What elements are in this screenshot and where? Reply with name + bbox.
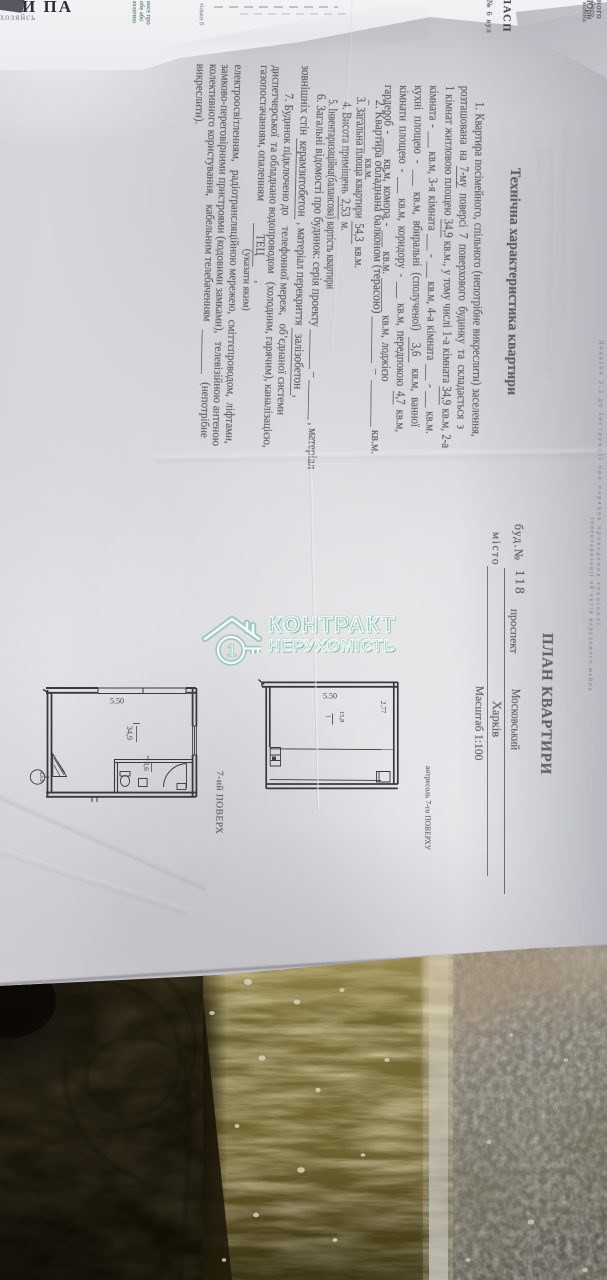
svg-text:82об: 82об (38, 772, 45, 783)
svg-text:5.50: 5.50 (323, 692, 337, 701)
svg-text:5.50: 5.50 (110, 697, 124, 706)
svg-text:1: 1 (325, 715, 332, 718)
svg-text:15,8: 15,8 (338, 711, 345, 722)
svg-text:34,9: 34,9 (125, 726, 134, 740)
svg-text:3,6: 3,6 (142, 762, 151, 772)
svg-text:2.77: 2.77 (379, 701, 387, 714)
svg-text:1: 1 (227, 641, 236, 660)
